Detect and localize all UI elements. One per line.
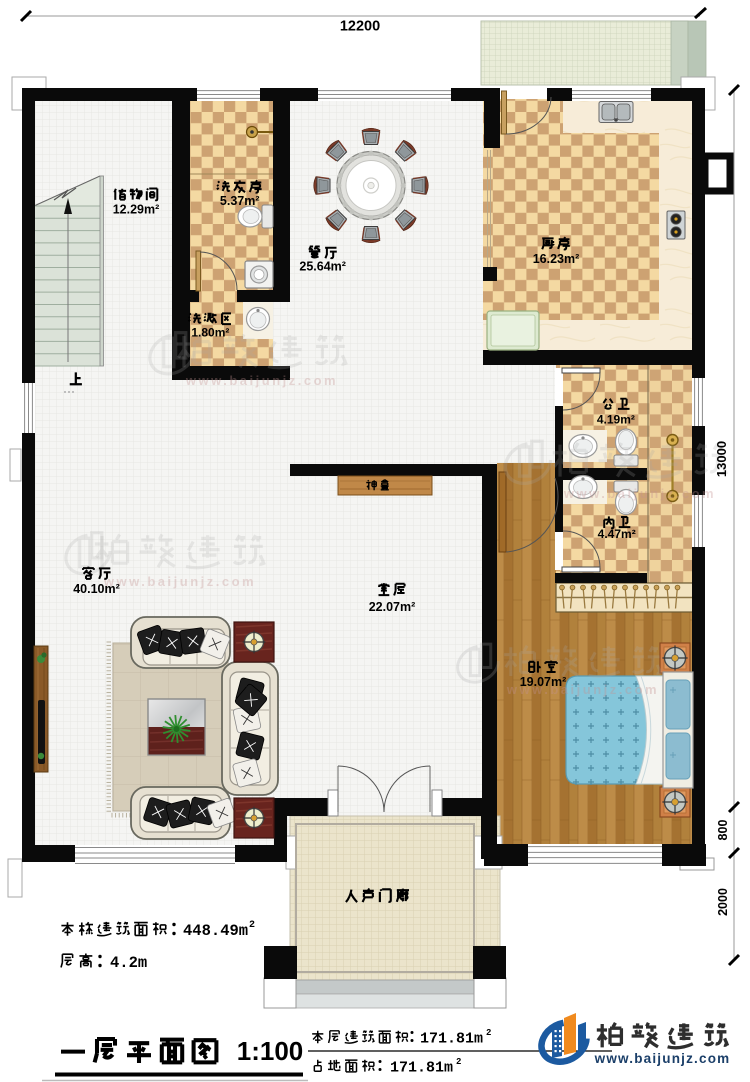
svg-text:16.23m²: 16.23m² — [533, 252, 580, 266]
svg-text:12200: 12200 — [340, 19, 380, 35]
svg-text:2000: 2000 — [716, 888, 730, 916]
svg-text:1.80m²: 1.80m² — [191, 326, 229, 340]
svg-text:171.81m: 171.81m — [390, 1060, 453, 1077]
svg-text:www.baijunjz.com: www.baijunjz.com — [563, 486, 716, 501]
svg-text:4.2m: 4.2m — [110, 954, 147, 972]
svg-text:2: 2 — [486, 1028, 491, 1038]
svg-text:www.baijunjz.com: www.baijunjz.com — [185, 373, 338, 388]
svg-text:19.07m²: 19.07m² — [520, 675, 567, 689]
svg-text:www.baijunjz.com: www.baijunjz.com — [594, 1051, 731, 1066]
svg-text:448.49m: 448.49m — [183, 922, 248, 940]
svg-text:1:100: 1:100 — [237, 1036, 304, 1066]
svg-text:800: 800 — [716, 820, 730, 841]
svg-text:25.64m²: 25.64m² — [299, 259, 346, 273]
svg-text:22.07m²: 22.07m² — [369, 600, 416, 614]
svg-text:2: 2 — [456, 1057, 461, 1067]
svg-text:40.10m²: 40.10m² — [73, 582, 120, 596]
svg-text:www.baijunjz.com: www.baijunjz.com — [103, 574, 256, 589]
svg-text:4.19m²: 4.19m² — [597, 412, 635, 426]
svg-text:13000: 13000 — [714, 441, 729, 477]
svg-text:5.37m²: 5.37m² — [220, 194, 260, 208]
svg-text:171.81m: 171.81m — [420, 1031, 483, 1048]
svg-text:4.47m²: 4.47m² — [598, 527, 636, 541]
svg-text:2: 2 — [249, 920, 255, 931]
svg-text:12.29m²: 12.29m² — [113, 202, 160, 216]
